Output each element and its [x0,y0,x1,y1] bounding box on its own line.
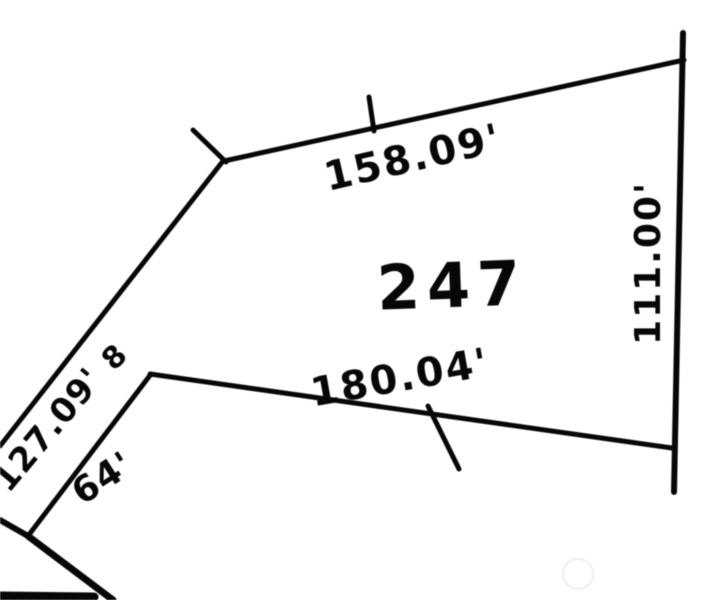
plat-map: 158.09' 111.00' 247 180.04' 127.09' 8 64… [0,0,704,600]
bottom-edge-bar [0,596,94,597]
lot-number: 247 [376,252,528,319]
dim-right-boundary: 111.00' [631,181,667,345]
branch-south [28,536,113,600]
corner-stub-northwest [193,130,226,162]
boundary-left-diagonal [0,161,223,446]
boundary-lines [0,0,704,600]
boundary-right [674,33,683,492]
watermark-circle [563,559,593,589]
tick-top-boundary [369,97,374,131]
branch-west [0,520,28,536]
